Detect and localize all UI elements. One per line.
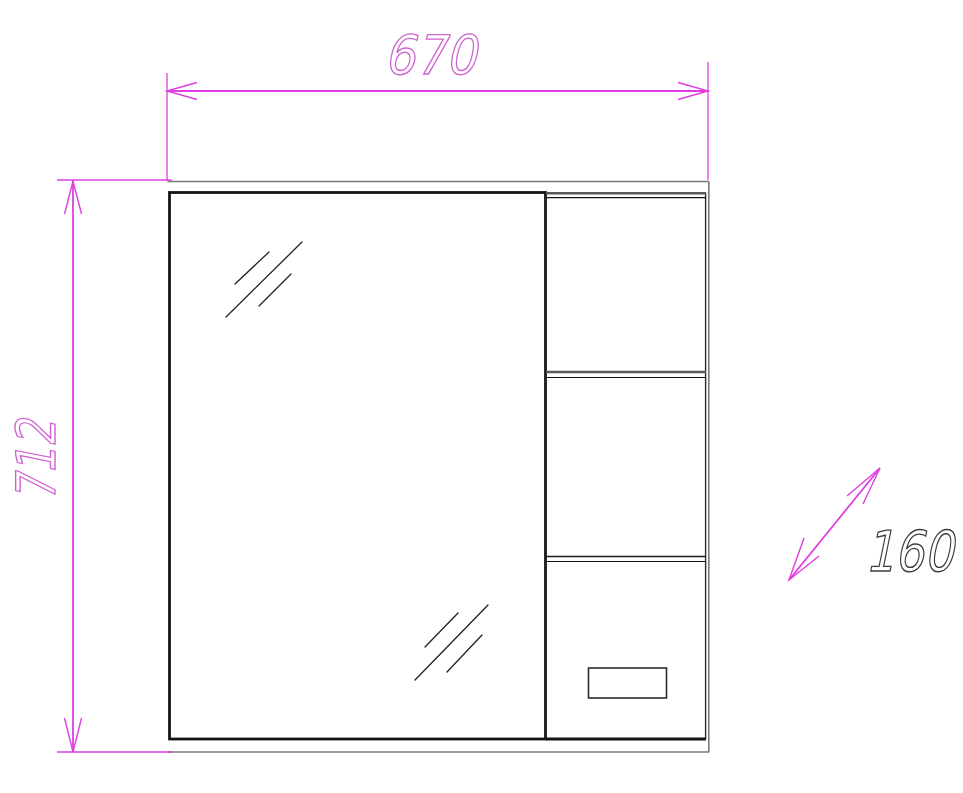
drawing-canvas: 670 712 160 <box>0 0 963 793</box>
height-dimension <box>57 180 172 752</box>
mirror-glass-hatch-bottom <box>415 605 488 680</box>
depth-dimension-label: 160 <box>865 519 957 584</box>
mirror-cabinet-technical-drawing: 670 712 160 <box>0 0 963 793</box>
cabinet-carcass-outline <box>168 182 710 753</box>
width-dimension-label: 670 <box>384 24 480 87</box>
height-dimension-label: 712 <box>5 417 68 502</box>
mirror-door <box>170 193 546 740</box>
mirror-glass-hatch-top <box>226 242 302 317</box>
drawer-recess <box>589 668 667 698</box>
shelf-column <box>546 193 706 740</box>
mirror-door-outline <box>170 193 546 740</box>
